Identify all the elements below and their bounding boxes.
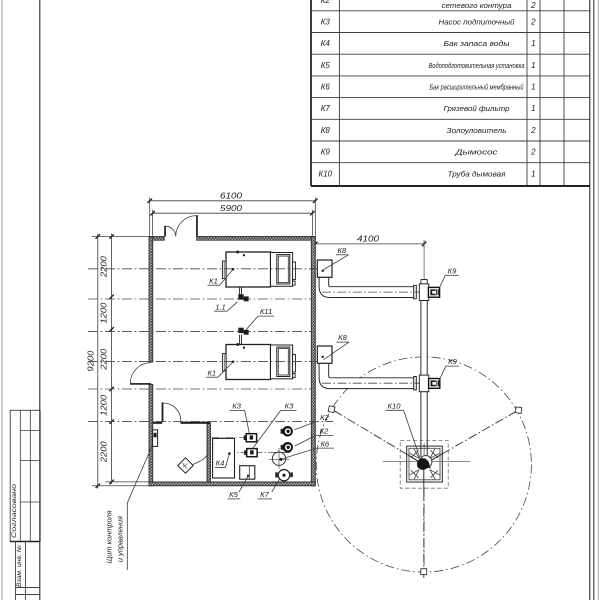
svg-text:1200: 1200 (100, 394, 109, 416)
svg-text:9200: 9200 (86, 350, 95, 372)
svg-text:К8: К8 (338, 333, 347, 342)
svg-text:2200: 2200 (100, 256, 109, 279)
svg-text:Дымосос: Дымосос (454, 148, 498, 157)
svg-text:1.1: 1.1 (215, 302, 226, 311)
svg-text:2: 2 (530, 1, 536, 10)
svg-text:2: 2 (530, 148, 536, 157)
svg-text:1: 1 (531, 61, 535, 70)
svg-text:1: 1 (531, 170, 535, 179)
svg-text:Бак запаса воды: Бак запаса воды (444, 39, 510, 48)
svg-text:К5: К5 (229, 490, 238, 499)
svg-text:К6: К6 (321, 83, 331, 92)
svg-text:К9: К9 (448, 266, 457, 275)
svg-text:1: 1 (531, 104, 535, 113)
svg-text:сетевого контура: сетевого контура (442, 1, 512, 10)
svg-text:2200: 2200 (100, 348, 109, 371)
svg-text:Согласовано: Согласовано (11, 483, 18, 538)
svg-text:2: 2 (530, 126, 536, 135)
svg-text:К1: К1 (207, 368, 216, 377)
svg-text:1: 1 (531, 83, 535, 92)
svg-text:К2: К2 (321, 0, 331, 5)
svg-text:К10: К10 (388, 401, 402, 410)
svg-text:Грязевой фильтр: Грязевой фильтр (444, 104, 510, 113)
svg-text:и управления: и управления (116, 516, 125, 562)
svg-text:1: 1 (531, 39, 535, 48)
svg-text:Водоподготовительная установка: Водоподготовительная установка (429, 61, 525, 70)
svg-text:К2: К2 (320, 413, 329, 422)
svg-text:К2: К2 (320, 427, 329, 436)
svg-text:К6: К6 (320, 439, 329, 448)
svg-text:4100: 4100 (357, 234, 380, 243)
svg-text:К7: К7 (321, 104, 331, 113)
svg-text:К11: К11 (260, 307, 272, 316)
svg-text:К3: К3 (232, 402, 241, 411)
svg-text:Взам. инв. №: Взам. инв. № (16, 545, 23, 587)
svg-text:Щит контроля: Щит контроля (105, 510, 114, 563)
svg-text:К1: К1 (209, 276, 218, 285)
svg-text:2: 2 (530, 17, 536, 26)
svg-text:К8: К8 (321, 126, 331, 135)
svg-text:К9: К9 (448, 357, 457, 366)
svg-text:К3: К3 (321, 17, 331, 26)
svg-text:Насос подпиточный: Насос подпиточный (439, 17, 516, 26)
svg-text:К4: К4 (321, 39, 331, 48)
svg-text:Бак расширительный мембранный: Бак расширительный мембранный (430, 83, 525, 92)
svg-text:1200: 1200 (100, 302, 109, 324)
svg-text:6100: 6100 (220, 191, 243, 200)
svg-text:К3: К3 (285, 402, 294, 411)
svg-text:5900: 5900 (220, 204, 243, 213)
svg-text:К5: К5 (321, 61, 331, 70)
svg-text:К9: К9 (321, 148, 331, 157)
svg-text:К7: К7 (260, 490, 269, 499)
svg-text:2200: 2200 (100, 441, 109, 464)
svg-text:К10: К10 (318, 170, 332, 179)
svg-text:К8: К8 (337, 246, 346, 255)
svg-text:Труба дымовая: Труба дымовая (448, 170, 506, 179)
svg-text:К4: К4 (216, 459, 225, 468)
svg-text:Золоуловитель: Золоуловитель (447, 126, 507, 135)
